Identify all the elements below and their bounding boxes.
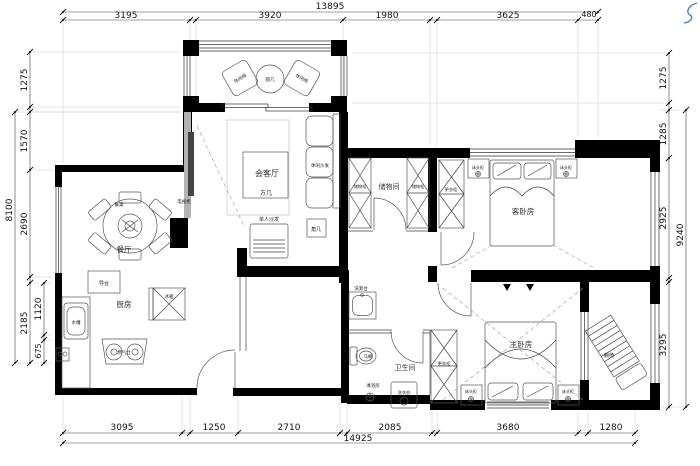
floor-plan: 13895 3195 3920 1980 3625 480 14925 3095… xyxy=(0,0,700,466)
storage-cabinet-right xyxy=(407,158,429,228)
extension-lines xyxy=(15,20,686,443)
sink-label: 水槽 xyxy=(72,319,81,326)
fridge-label: 冰箱 xyxy=(165,293,174,300)
dim-right-3: 3295 xyxy=(659,334,669,357)
nightstand-label: 床头柜 xyxy=(560,164,572,170)
dim-left-3: 2185 xyxy=(20,312,30,335)
nightstand-label: 床头柜 xyxy=(465,388,477,394)
leisure-chair-left: 休闲椅 xyxy=(221,59,259,97)
corner-table-label: 角几 xyxy=(311,226,321,233)
room-label-guest-bedroom: 客卧房 xyxy=(512,206,535,216)
leisure-chair-label: 休闲椅 xyxy=(233,72,249,85)
room-label-master-bedroom: 主卧房 xyxy=(510,339,533,349)
guest-bedroom-door xyxy=(441,232,474,265)
square-table-label: 方几 xyxy=(260,189,272,197)
dim-top-0: 3195 xyxy=(115,11,138,21)
dim-bottom-1: 1250 xyxy=(203,423,226,433)
storage-cabinet-label: 储物柜 xyxy=(412,183,425,190)
nightstand-label: 床头柜 xyxy=(562,388,574,394)
master-bed xyxy=(485,322,556,403)
toilet-label: 马桶 xyxy=(364,353,373,360)
lounge-chair-label: 躺椅 xyxy=(604,352,614,359)
nightstand-label: 床头柜 xyxy=(472,164,484,170)
storage-cabinet-label: 储物柜 xyxy=(354,183,367,190)
dim-left-1: 1570 xyxy=(20,129,30,152)
dining-table-label: 餐桌 xyxy=(115,201,124,208)
guest-bed xyxy=(490,160,554,246)
round-side-table-label: 圆几 xyxy=(266,77,275,83)
dim-left-total: 8100 xyxy=(5,198,15,221)
room-label-bathroom: 卫生间 xyxy=(395,363,416,372)
dim-bottom-5: 1280 xyxy=(600,423,623,433)
gas-stove-label: 燃气灶 xyxy=(117,349,131,356)
tv-cabinet-label: 电视柜 xyxy=(177,198,191,205)
room-label-storage: 储物间 xyxy=(379,182,400,191)
dim-top-2: 1980 xyxy=(376,11,399,21)
island-counter-label: 导台 xyxy=(99,280,109,287)
room-label-kitchen: 厨房 xyxy=(117,299,132,309)
guest-sightlines xyxy=(452,245,594,268)
dim-right-1: 1285 xyxy=(659,123,669,146)
washbasin xyxy=(349,292,376,319)
dim-bottom-2: 2710 xyxy=(278,423,301,433)
kitchen-counter xyxy=(62,297,90,388)
master-wardrobe xyxy=(431,330,457,403)
kitchen-door xyxy=(197,350,235,388)
shower-room-label: 淋浴房 xyxy=(366,382,380,389)
dim-bottom-3: 2085 xyxy=(379,423,402,433)
dim-right-2: 2925 xyxy=(659,207,669,230)
leisure-sofa xyxy=(306,114,340,208)
guest-wardrobe xyxy=(439,160,464,228)
blue-scribble xyxy=(684,3,697,23)
dim-bottom-total: 14925 xyxy=(344,434,373,444)
storage-cabinet-left xyxy=(349,158,371,228)
dim-top-3: 3625 xyxy=(497,11,520,21)
curtain-marks xyxy=(503,284,534,291)
tv xyxy=(188,132,194,196)
dim-bottom-0: 3095 xyxy=(111,423,134,433)
dim-left-inner-1: 675 xyxy=(34,343,43,358)
dim-left-2: 2690 xyxy=(20,212,30,235)
leisure-chair-right: 休闲椅 xyxy=(283,59,321,97)
master-bedroom-door xyxy=(438,283,471,316)
washing-machine-label: 洗衣机 xyxy=(398,389,411,396)
washbasin-label: 洗漱台 xyxy=(354,285,368,292)
dim-top-4: 480 xyxy=(581,10,596,19)
room-label-living: 会客厅 xyxy=(255,168,279,178)
single-sofa xyxy=(250,224,288,258)
fridge xyxy=(149,288,185,320)
window-layer xyxy=(56,41,659,408)
dim-top-1: 3920 xyxy=(259,11,282,21)
shower-head xyxy=(366,393,374,401)
single-sofa-label: 单人沙发 xyxy=(259,216,279,223)
furniture-layer: 休闲椅 圆几 休闲椅 休闲沙发 单人沙发 角几 电视柜 xyxy=(56,59,648,408)
wall-layer xyxy=(55,40,660,410)
bathroom-door xyxy=(391,331,423,363)
living-sightline xyxy=(197,126,244,226)
dim-left-inner-0: 1120 xyxy=(34,297,44,320)
lounge-chair xyxy=(585,315,648,390)
dim-left-0: 1275 xyxy=(20,69,30,92)
dim-bottom-4: 3680 xyxy=(497,423,520,433)
wardrobe-label: 更衣柜 xyxy=(445,186,458,193)
room-label-dining: 餐厅 xyxy=(117,245,132,254)
floor-plan-svg: 13895 3195 3920 1980 3625 480 14925 3095… xyxy=(0,0,700,466)
leisure-sofa-label: 休闲沙发 xyxy=(311,162,329,169)
storage-door xyxy=(374,198,406,230)
living-rug xyxy=(227,120,289,215)
dim-right-total: 9240 xyxy=(676,223,686,246)
wardrobe-label: 更衣柜 xyxy=(438,360,451,367)
dim-top-total: 13895 xyxy=(316,2,345,12)
dim-right-0: 1275 xyxy=(659,67,669,90)
leisure-chair-label: 休闲椅 xyxy=(294,72,310,85)
